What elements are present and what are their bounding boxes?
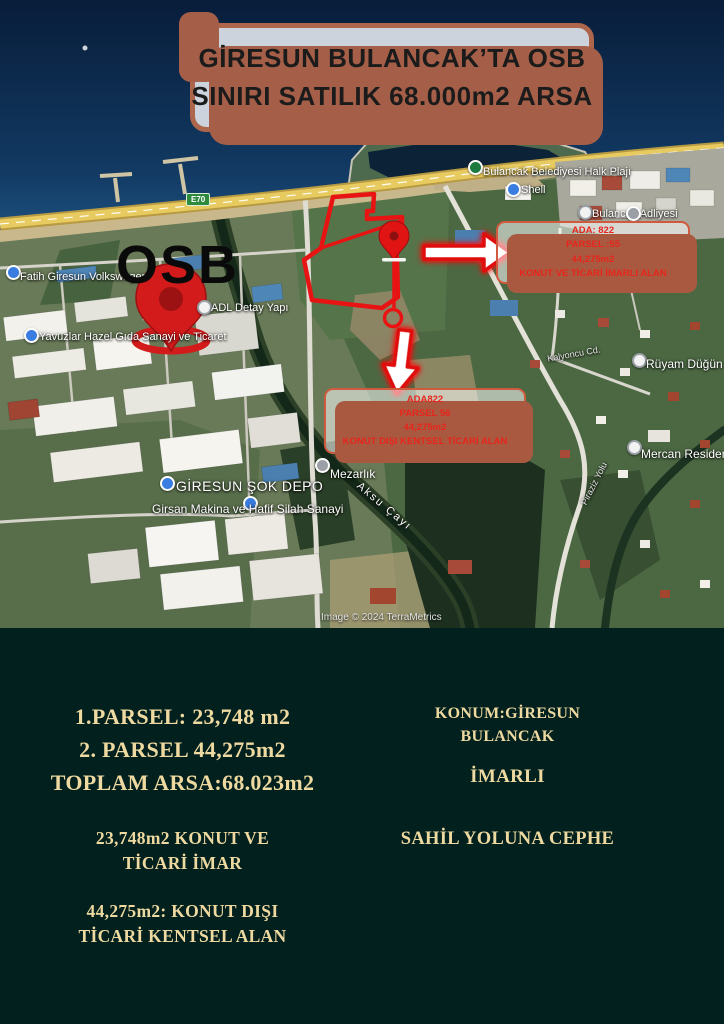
title-line-2: SINIRI SATILIK 68.000m2 ARSA (191, 78, 592, 116)
zoning-2-line-2: TİCARİ KENTSEL ALAN (10, 924, 355, 949)
map-label-detay-yapi[interactable]: ADL Detay Yapı (211, 302, 288, 314)
zoning-status: İMARLI (350, 766, 665, 788)
info1-ada: ADA: 822 (572, 224, 614, 238)
e70-road-badge: E70 (186, 193, 210, 206)
poi-icon[interactable] (626, 206, 641, 221)
map-label-hazel-gida[interactable]: Yavuzlar Hazel Gıda Sanayi ve Ticaret (39, 331, 227, 343)
detay-poi-icon[interactable] (197, 300, 212, 315)
info1-area: 44,275m2 (572, 253, 615, 267)
park-poi-icon[interactable] (468, 160, 483, 175)
map-attribution: Image © 2024 TerraMetrics (321, 612, 442, 623)
cemetery-poi-icon[interactable] (315, 458, 330, 473)
title-card: GİRESUN BULANCAK’TA OSB SINIRI SATILIK 6… (190, 23, 594, 132)
info2-ada: ADA822 (407, 393, 443, 407)
dealer-poi-icon[interactable] (6, 265, 21, 280)
title-line-1: GİRESUN BULANCAK’TA OSB (198, 40, 585, 78)
factory-poi-icon[interactable] (24, 328, 39, 343)
frontage-info: SAHİL YOLUNA CEPHE (350, 829, 665, 850)
map-label-mercan[interactable]: Mercan Residence (641, 447, 724, 461)
info1-zoning: KONUT VE TİCARİ İMARLI ALAN (519, 267, 666, 281)
map-label-shell[interactable]: Shell (521, 184, 545, 196)
map-label-mezarlik[interactable]: Mezarlık (330, 467, 375, 481)
wedding-hall-poi-icon[interactable] (632, 353, 647, 368)
satellite-map: Bulancak Belediyesi Halk Plajı Shell Bul… (0, 0, 724, 628)
zoning-2-line-1: 44,275m2: KONUT DIŞI (10, 899, 355, 924)
parcel-summary: 1.PARSEL: 23,748 m2 2. PARSEL 44,275m2 T… (10, 700, 355, 799)
zoning-2: 44,275m2: KONUT DIŞI TİCARİ KENTSEL ALAN (10, 899, 355, 948)
info1-parsel: PARSEL :55 (566, 238, 620, 252)
zoning-1-line-1: 23,748m2 KONUT VE (10, 826, 355, 851)
map-label-ruyam[interactable]: Rüyam Düğün Sal (646, 357, 724, 371)
shell-poi-icon[interactable] (506, 182, 521, 197)
parcel-55-info-box: ADA: 822 PARSEL :55 44,275m2 KONUT VE Tİ… (496, 221, 690, 284)
map-label-sok-depo[interactable]: GİRESUN ŞOK DEPO (176, 478, 323, 494)
courthouse-poi-icon[interactable] (578, 205, 593, 220)
zoning-1-line-2: TİCARİ İMAR (10, 851, 355, 876)
location-line-1: KONUM:GİRESUN (350, 702, 665, 725)
map-label-halk-plaji[interactable]: Bulancak Belediyesi Halk Plajı (483, 166, 631, 178)
info2-zoning: KONUT DIŞI KENTSEL TİCARİ ALAN (343, 435, 508, 449)
property-details-section: 1.PARSEL: 23,748 m2 2. PARSEL 44,275m2 T… (0, 628, 724, 1024)
total-area-line: TOPLAM ARSA:68.023m2 (10, 766, 355, 799)
depot-poi-icon[interactable] (160, 476, 175, 491)
zoning-1: 23,748m2 KONUT VE TİCARİ İMAR (10, 826, 355, 875)
location-line-2: BULANCAK (350, 725, 665, 748)
parcel-1-line: 1.PARSEL: 23,748 m2 (10, 700, 355, 733)
parcel-56-info-box: ADA822 PARSEL 56 44,275m2 KONUT DIŞI KEN… (324, 388, 526, 454)
info2-area: 44,275m2 (404, 421, 447, 435)
parcel-2-line: 2. PARSEL 44,275m2 (10, 733, 355, 766)
osb-label: OSB (116, 234, 239, 296)
location-info: KONUM:GİRESUN BULANCAK (350, 702, 665, 748)
info2-parsel: PARSEL 56 (400, 407, 451, 421)
map-label-girsan[interactable]: Girsan Makina ve Hafif Silah Sanayi (152, 502, 343, 516)
residence-poi-icon[interactable] (627, 440, 642, 455)
